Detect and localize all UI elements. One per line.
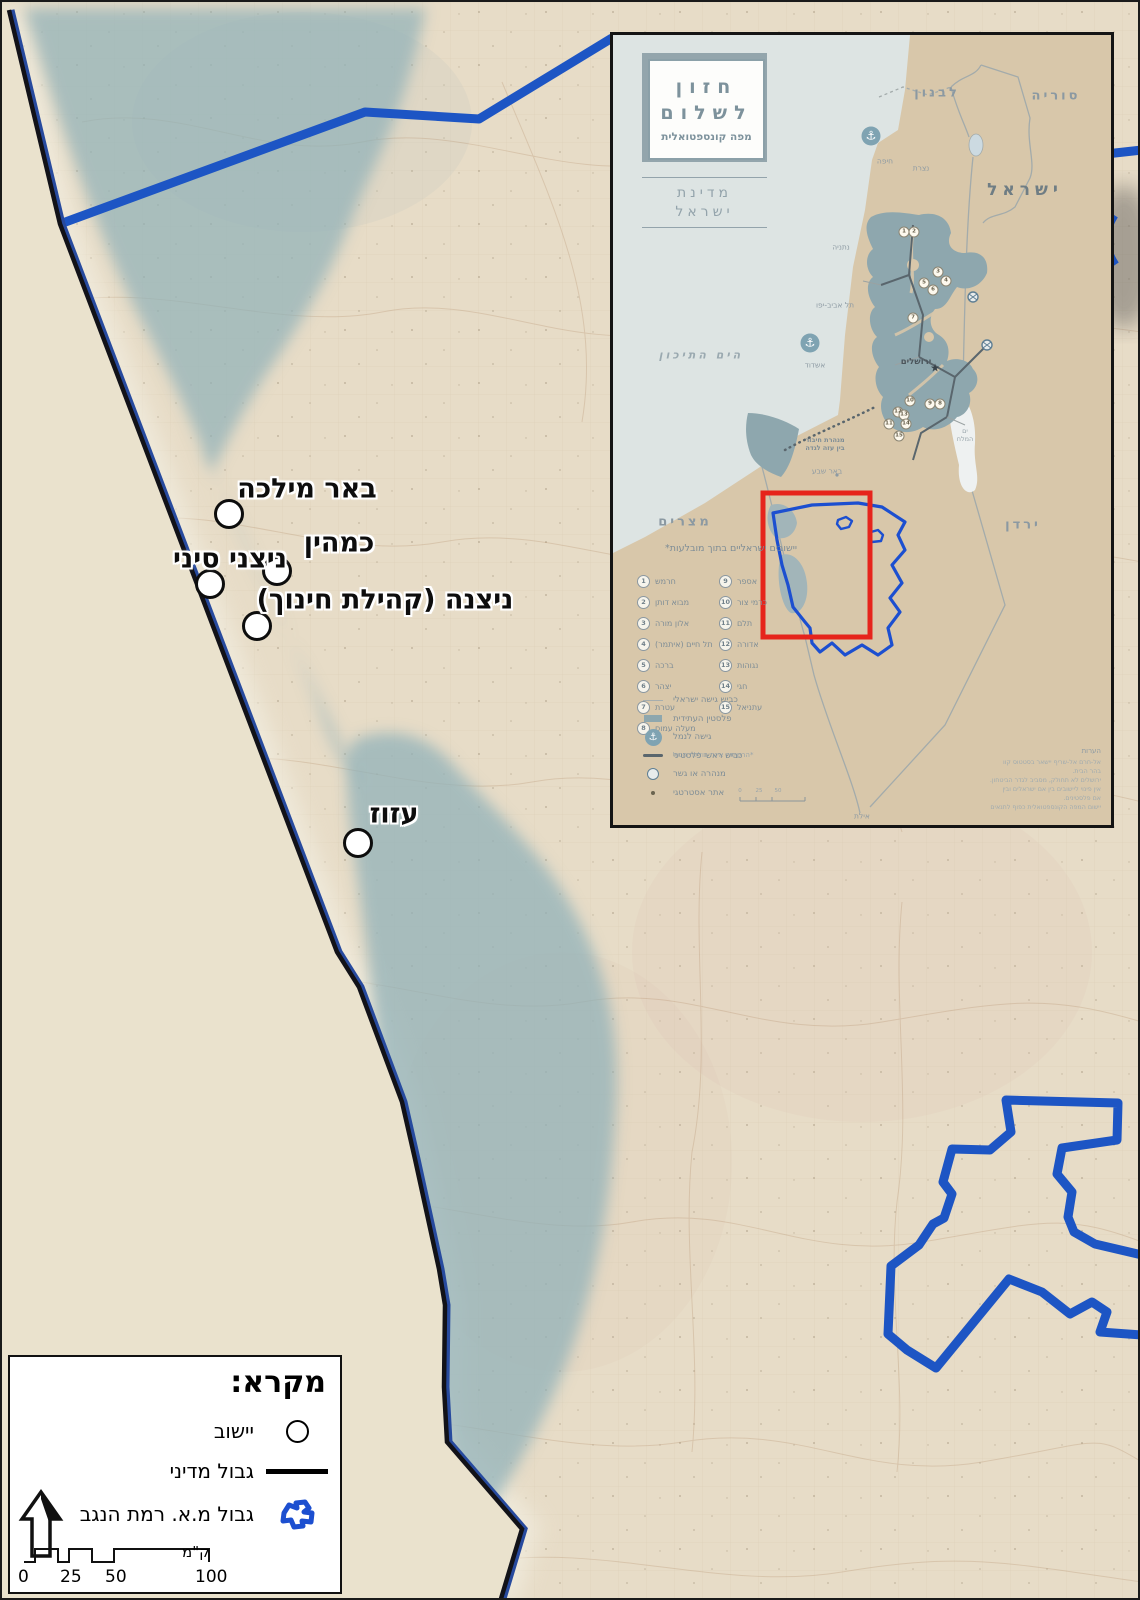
- state-label-line1: מדינת: [642, 185, 767, 201]
- inset-legend: כביש גישה ישראליפלסטין העתידית⚓גישה לנמל…: [641, 691, 743, 802]
- scale-tick: 50: [105, 1567, 127, 1587]
- enclave-map-number: 4: [941, 276, 952, 287]
- enclave-item: 4תל חיים (איתמר): [637, 634, 713, 655]
- inset-scale-tick: 50: [775, 788, 782, 794]
- enclave-name: אלון מורה: [655, 619, 689, 628]
- note-line: יישום המפה הקונספטואלית כפוף לתנאים: [946, 803, 1101, 812]
- dark-line-icon: [641, 754, 665, 757]
- jerusalem-star-icon: ★: [930, 362, 940, 375]
- gray-line-icon: [641, 700, 665, 702]
- enclave-number: 5: [637, 659, 650, 672]
- label-mediterranean: הים התיכון: [659, 349, 743, 362]
- enclave-map-number: 10: [905, 396, 916, 407]
- dot-icon: [641, 791, 665, 795]
- label-egypt: מצרים: [658, 515, 712, 530]
- divider: [642, 227, 767, 228]
- enclave-name: אדורה: [737, 640, 759, 649]
- settlement-label: ניצני סיני: [173, 544, 287, 575]
- notes-header: הערות: [946, 747, 1101, 755]
- label-syria: סוריה: [1032, 89, 1081, 104]
- inset-legend-row: פלסטין העתידית: [641, 710, 743, 729]
- enclave-number: 1: [637, 575, 650, 588]
- city-beer-sheva: באר שבע: [812, 467, 842, 476]
- enclave-number: 2: [637, 596, 650, 609]
- label-jordan: ירדן: [1005, 518, 1041, 533]
- inset-legend-row: ⚓גישה לנמל: [641, 728, 743, 747]
- enclave-item: 11תלם: [719, 613, 767, 634]
- inset-legend-label: כביש גישה ישראלי: [673, 695, 738, 705]
- legend-box: מקרא: יישוב גבול מדיני גבול מ.א. רמת הנג…: [8, 1355, 342, 1594]
- enclave-name: ברכה: [655, 661, 674, 670]
- inset-legend-label: מנהרה או גשר: [673, 769, 726, 779]
- enclave-map-number: 7: [908, 313, 919, 324]
- enclave-number: 4: [637, 638, 650, 651]
- enclave-number: 12: [719, 638, 732, 651]
- note-line: אם פלסטינים.: [946, 794, 1101, 803]
- settlement-label: ניצנה (קהילת חינוך): [257, 585, 514, 616]
- label-dead-sea-2: המלח: [957, 435, 974, 443]
- divider: [642, 177, 767, 178]
- enclave-name: חגי: [737, 682, 747, 691]
- note-line: בהר הבית.: [946, 767, 1101, 776]
- note-line: ירושלים לא תחולק, מסביב לגדר הביטחון.: [946, 776, 1101, 785]
- enclave-name: חרמש: [655, 577, 676, 586]
- inset-notes: הערות אל-חרם אל-שריף יישאר בסטטוס קוובהר…: [946, 747, 1101, 812]
- inset-legend-label: אתר אסטרטגי: [673, 788, 724, 798]
- state-label-line2: ישראל: [642, 204, 767, 220]
- enclave-name: תלם: [737, 619, 752, 628]
- enclave-number: 10: [719, 596, 732, 609]
- city-eilat: אילת: [854, 812, 870, 821]
- anchor-icon: ⚓: [641, 729, 665, 746]
- enclave-name: אספר: [737, 577, 757, 586]
- teal-swatch-icon: [641, 715, 665, 722]
- note-line: אל-חרם אל-שריף יישאר בסטטוס קוו: [946, 758, 1101, 767]
- label-lebanon: לבנון: [914, 86, 960, 101]
- inset-scale-tick: 25: [756, 788, 763, 794]
- city-tel-aviv: תל אביב-יפו: [816, 301, 854, 310]
- inset-legend-label: גישה לנמל: [673, 732, 712, 742]
- settlement-label: עזוז: [370, 799, 419, 830]
- north-arrow-icon: [22, 1492, 60, 1556]
- inset-legend-label: פלסטין העתידית: [673, 714, 732, 724]
- inset-legend-row: כביש ראשי פלסטיני: [641, 747, 743, 766]
- enclave-number: 9: [719, 575, 732, 588]
- enclave-map-number: 6: [928, 285, 939, 296]
- enclave-number: 13: [719, 659, 732, 672]
- inset-legend-row: אתר אסטרטגי: [641, 784, 743, 803]
- enclave-map-number: 2: [909, 227, 920, 238]
- enclave-item: 9אספר: [719, 571, 767, 592]
- tunnel-circle-icon: [641, 768, 665, 780]
- enclave-number: 11: [719, 617, 732, 630]
- enclave-item: 2מבוא דותן: [637, 592, 713, 613]
- inset-title-line1: חזון: [676, 76, 738, 98]
- label-dead-sea-1: ים: [957, 427, 974, 435]
- inset-legend-row: כביש גישה ישראלי: [641, 691, 743, 710]
- inset-legend-row: מנהרה או גשר: [641, 765, 743, 784]
- inset-map: חזון לשלום מפה קונספטואלית מדינת ישראל ל…: [610, 32, 1114, 828]
- port-anchor-icon: ⚓: [801, 334, 820, 353]
- city-jerusalem: ירושלים: [901, 357, 932, 367]
- label-israel: ישראל: [987, 180, 1063, 200]
- scale-tick: 100: [195, 1567, 227, 1587]
- city-nazareth: נצרת: [913, 164, 930, 173]
- enclave-name: מבוא דותן: [655, 598, 689, 607]
- settlement-label: באר מילכה: [237, 474, 376, 505]
- city-ashdod: אשדוד: [805, 361, 826, 370]
- enclave-name: נגוהות: [737, 661, 758, 670]
- enclave-item: 10כרמי צור: [719, 592, 767, 613]
- settlement-label: כמהין: [304, 528, 375, 559]
- city-netanya: נתניה: [832, 243, 850, 252]
- tunnel-label-2: בין עזה לגדה: [805, 444, 844, 452]
- scale-tick: 0: [18, 1567, 29, 1587]
- enclave-name: תל חיים (איתמר): [655, 640, 713, 649]
- enclave-map-number: 14: [901, 419, 912, 430]
- inset-legend-label: כביש ראשי פלסטיני: [673, 751, 743, 761]
- enclave-item: 1חרמש: [637, 571, 713, 592]
- inset-title-line2: לשלום: [660, 102, 752, 124]
- enclave-map-number: 8: [935, 399, 946, 410]
- scale-unit: ק"מ: [182, 1543, 210, 1561]
- map-canvas: באר מילכה כמהין ניצני סיני ניצנה (קהילת …: [0, 0, 1140, 1600]
- enclave-map-number: 15: [894, 431, 905, 442]
- enclave-item: 3אלון מורה: [637, 613, 713, 634]
- inset-subtitle: מפה קונספטואלית: [661, 131, 752, 143]
- enclaves-header: יישובים ישראליים בתוך מובלעות*: [627, 543, 797, 554]
- enclave-map-number: 11: [884, 419, 895, 430]
- north-arrow-and-scale: [10, 1357, 344, 1596]
- inset-title-box: חזון לשלום מפה קונספטואלית: [642, 53, 767, 162]
- tunnel-label-1: מנהרת חיבור: [805, 436, 844, 444]
- enclave-name: יצהר: [655, 682, 671, 691]
- city-haifa: חיפה: [877, 157, 893, 166]
- enclave-number: 3: [637, 617, 650, 630]
- enclave-item: 5ברכה: [637, 655, 713, 676]
- note-line: אין פינוי ליישובים בין אם ישראלים ובין: [946, 785, 1101, 794]
- scale-tick: 25: [60, 1567, 82, 1587]
- enclave-item: 12אדורה: [719, 634, 767, 655]
- port-anchor-icon: ⚓: [862, 127, 881, 146]
- enclave-map-number: 9: [925, 399, 936, 410]
- enclave-item: 13נגוהות: [719, 655, 767, 676]
- enclave-name: כרמי צור: [737, 598, 767, 607]
- inset-scale-tick: 0: [738, 788, 742, 794]
